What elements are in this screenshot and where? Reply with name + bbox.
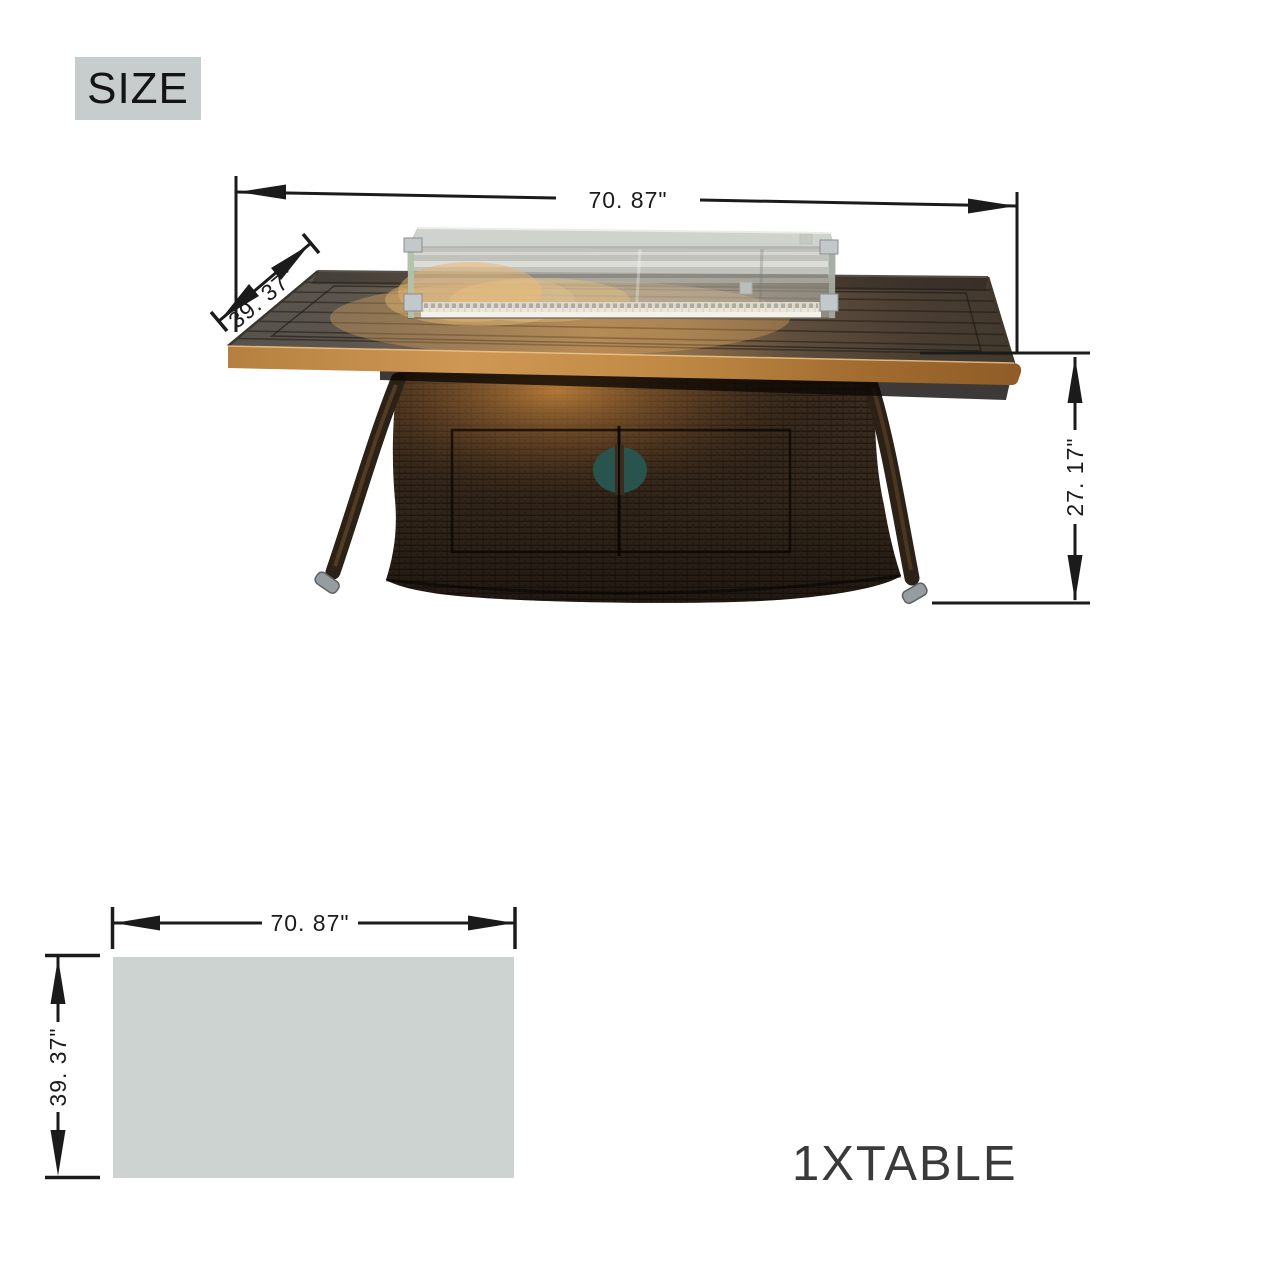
wicker-base	[313, 372, 929, 605]
glass-wind-guard	[398, 228, 838, 322]
footprint-diagram: 70. 87" 39. 37"	[45, 907, 515, 1178]
quantity-label: 1XTABLE	[792, 1136, 1018, 1192]
left-leg-highlight	[335, 385, 396, 566]
bracket-front-right-top	[820, 240, 838, 254]
fire-pit-table-illustration	[228, 228, 1021, 605]
arrow-right	[468, 916, 514, 931]
footprint-dimension-depth: 39. 37"	[45, 956, 100, 1178]
glass-reflection-3	[414, 252, 828, 255]
top-width-dimension-label: 70. 87"	[588, 187, 667, 213]
footprint-rectangle	[113, 957, 514, 1178]
bracket-front-left-bottom	[404, 294, 422, 311]
arrow-right	[968, 199, 1016, 214]
footprint-width-label: 70. 87"	[270, 910, 349, 936]
size-diagram-canvas: SIZE	[0, 0, 1280, 1280]
base-body-shade	[386, 372, 901, 603]
footprint-depth-label: 39. 37"	[45, 1027, 71, 1106]
height-dimension-label: 27. 17"	[1062, 437, 1088, 516]
arrow-up	[51, 958, 66, 1004]
diagram-svg: 70. 87" 39. 37" 27. 17"	[0, 0, 1280, 1280]
arrow-left	[114, 916, 160, 931]
arrow-down	[1068, 555, 1083, 601]
arrow-down	[51, 1130, 66, 1176]
footprint-dimension-width: 70. 87"	[113, 907, 516, 949]
bracket-front-right-bottom	[820, 294, 838, 311]
fire-glass-tray	[421, 302, 821, 318]
arrow-up	[1068, 357, 1083, 403]
bracket-front-left-top	[404, 238, 422, 252]
arrow-left	[238, 185, 286, 200]
right-foot-cap	[901, 581, 929, 605]
